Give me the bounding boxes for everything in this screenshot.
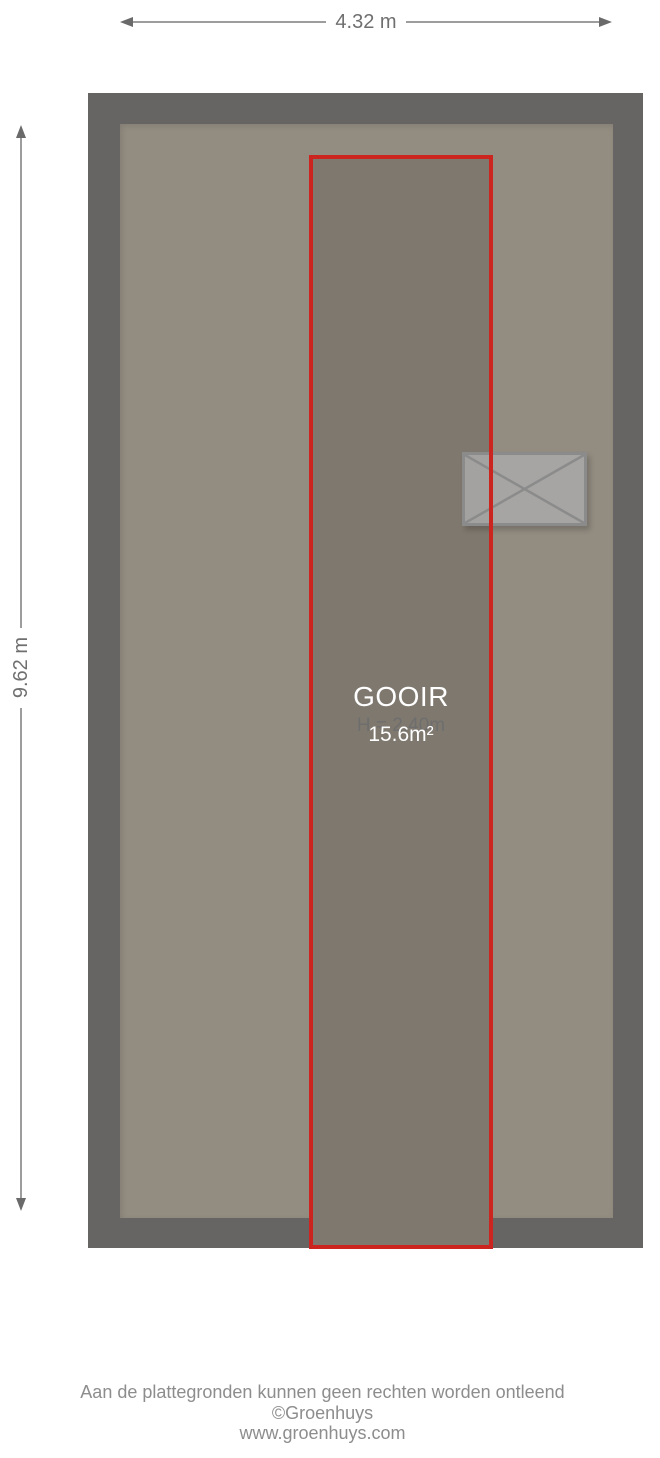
- footer-copyright: ©Groenhuys: [0, 1403, 645, 1424]
- footer: Aan de plattegronden kunnen geen rechten…: [0, 1382, 645, 1444]
- room-gooir-labels: GOOIR H = 2.40m 15.6m²: [309, 155, 493, 1249]
- dimension-line-segment: [133, 21, 326, 23]
- arrow-up-icon: [16, 125, 26, 138]
- dimension-line-segment: [20, 138, 22, 628]
- dimension-line-segment: [20, 708, 22, 1198]
- width-dimension-label: 4.32 m: [326, 10, 405, 34]
- footer-disclaimer: Aan de plattegronden kunnen geen rechten…: [0, 1382, 645, 1403]
- room-area-label: 15.6m²: [368, 723, 433, 747]
- building-outline: GOOIR H = 2.40m 15.6m²: [88, 93, 643, 1248]
- arrow-down-icon: [16, 1198, 26, 1211]
- floor-plan-page: 4.32 m 9.62 m GOOIR H = 2.40m 15.6m²: [0, 0, 660, 1458]
- dimension-line-segment: [406, 21, 599, 23]
- height-dimension: 9.62 m: [9, 125, 33, 1211]
- attic-floor: GOOIR H = 2.40m 15.6m²: [120, 124, 613, 1218]
- arrow-left-icon: [120, 17, 133, 27]
- footer-website: www.groenhuys.com: [0, 1423, 645, 1444]
- room-name-label: GOOIR: [353, 682, 449, 712]
- width-dimension: 4.32 m: [120, 10, 612, 34]
- height-dimension-label: 9.62 m: [10, 628, 33, 707]
- arrow-right-icon: [599, 17, 612, 27]
